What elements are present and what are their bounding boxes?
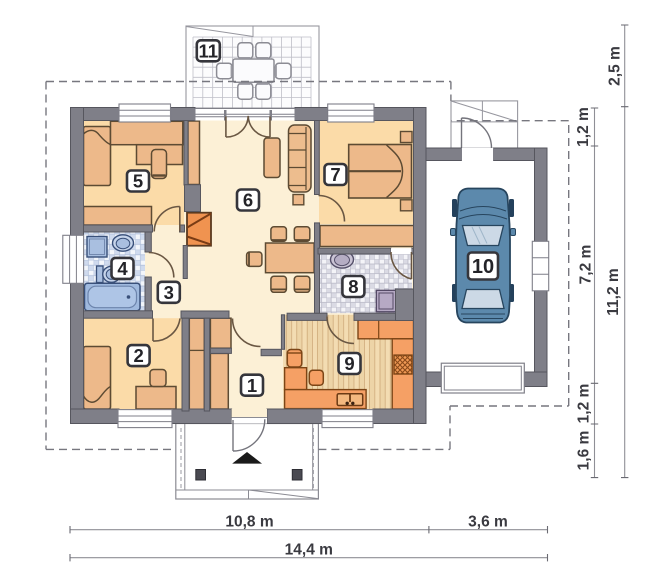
svg-text:5: 5 xyxy=(133,171,143,192)
svg-text:1,2 m: 1,2 m xyxy=(575,107,592,147)
svg-text:8: 8 xyxy=(348,276,358,297)
svg-text:1,2 m: 1,2 m xyxy=(576,384,593,424)
svg-text:6: 6 xyxy=(243,190,253,211)
svg-text:11,2 m: 11,2 m xyxy=(605,268,622,315)
svg-text:2,5 m: 2,5 m xyxy=(607,46,624,86)
svg-text:11: 11 xyxy=(199,40,219,61)
svg-text:10,8 m: 10,8 m xyxy=(225,514,273,531)
svg-text:3: 3 xyxy=(164,282,174,303)
svg-text:1,6 m: 1,6 m xyxy=(576,431,593,471)
svg-text:9: 9 xyxy=(344,353,354,374)
svg-text:3,6 m: 3,6 m xyxy=(468,514,508,531)
svg-text:4: 4 xyxy=(117,258,128,279)
svg-text:14,4 m: 14,4 m xyxy=(285,542,333,559)
svg-text:10: 10 xyxy=(472,256,494,278)
svg-text:7: 7 xyxy=(330,164,340,185)
svg-text:2: 2 xyxy=(133,345,143,366)
svg-text:7,2 m: 7,2 m xyxy=(578,245,595,285)
svg-text:1: 1 xyxy=(247,375,257,396)
